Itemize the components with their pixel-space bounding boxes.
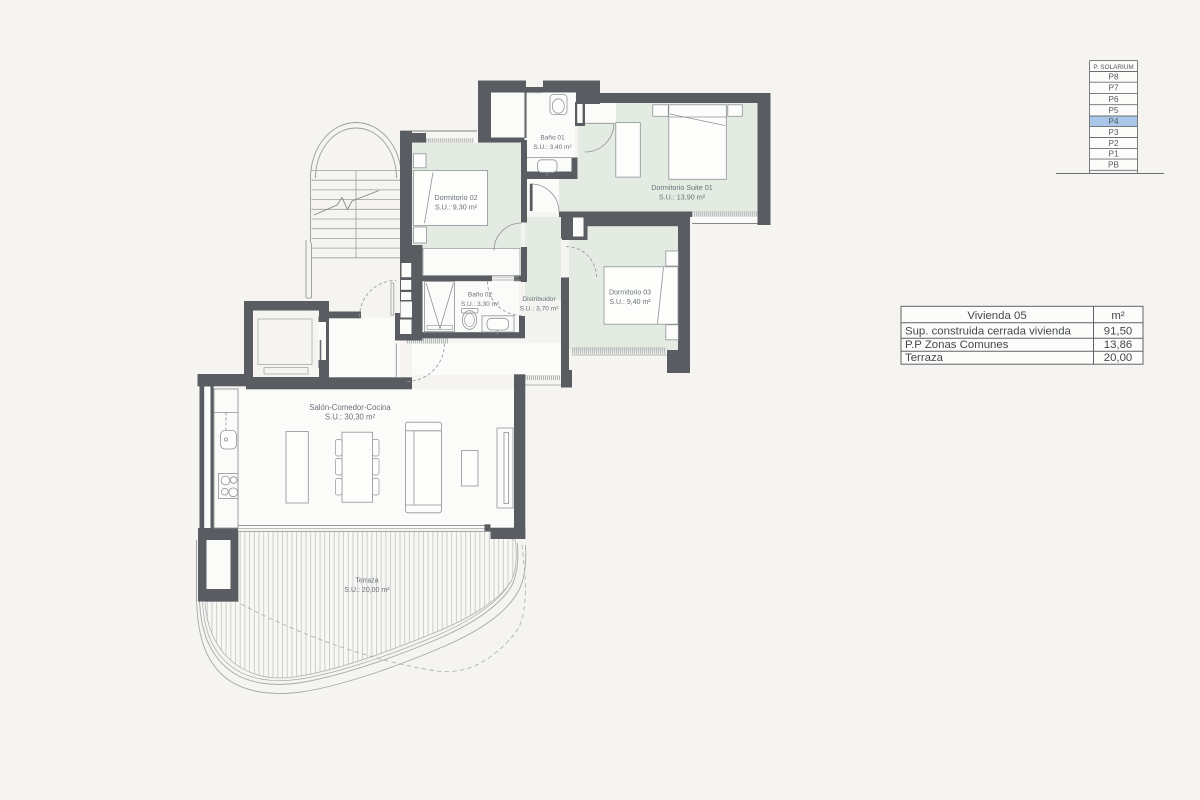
svg-text:S.U.: 9,40 m²: S.U.: 9,40 m² [609,299,651,306]
svg-text:Terraza: Terraza [905,352,944,364]
svg-text:S.U.: 13,90 m²: S.U.: 13,90 m² [659,193,706,202]
svg-text:S.U.: 3,70 m²: S.U.: 3,70 m² [520,306,560,313]
svg-text:P6: P6 [1108,95,1118,104]
svg-text:Baño 01: Baño 01 [540,135,565,142]
svg-text:Terraza: Terraza [355,578,378,585]
svg-text:P4: P4 [1108,117,1118,126]
svg-text:m²: m² [1111,310,1124,322]
svg-text:P8: P8 [1108,73,1118,82]
svg-text:PB: PB [1108,161,1119,170]
svg-text:P7: P7 [1108,84,1118,93]
svg-text:S.U.: 3,30 m²: S.U.: 3,30 m² [461,301,500,308]
svg-text:S.U.: 30,30 m²: S.U.: 30,30 m² [325,413,376,422]
svg-text:P.P Zonas Comunes: P.P Zonas Comunes [905,339,1009,351]
svg-text:P2: P2 [1108,139,1118,148]
svg-text:Baño 02: Baño 02 [468,292,493,299]
svg-text:Sup. construida cerrada vivien: Sup. construida cerrada vivienda [905,326,1072,338]
svg-text:Dormitorio Suite 01: Dormitorio Suite 01 [651,183,713,192]
svg-text:Distribuidor: Distribuidor [522,296,556,303]
svg-text:Salón-Comedor-Cocina: Salón-Comedor-Cocina [309,403,391,412]
svg-text:S.U.: 20,00 m²: S.U.: 20,00 m² [344,587,390,594]
svg-text:S.U.: 3,40 m²: S.U.: 3,40 m² [533,144,572,151]
svg-text:91,50: 91,50 [1104,326,1133,338]
svg-text:20,00: 20,00 [1104,352,1133,364]
svg-text:13,86: 13,86 [1104,339,1133,351]
svg-text:Dormitorio 03: Dormitorio 03 [609,290,651,297]
svg-text:Vivienda 05: Vivienda 05 [967,310,1026,322]
svg-text:P5: P5 [1108,106,1118,115]
svg-text:Dormitorio 02: Dormitorio 02 [434,193,477,202]
svg-text:P1: P1 [1108,150,1118,159]
svg-text:P3: P3 [1108,128,1118,137]
svg-text:P. SOLARIUM: P. SOLARIUM [1093,64,1133,71]
svg-text:S.U.: 9,30 m²: S.U.: 9,30 m² [435,203,478,212]
